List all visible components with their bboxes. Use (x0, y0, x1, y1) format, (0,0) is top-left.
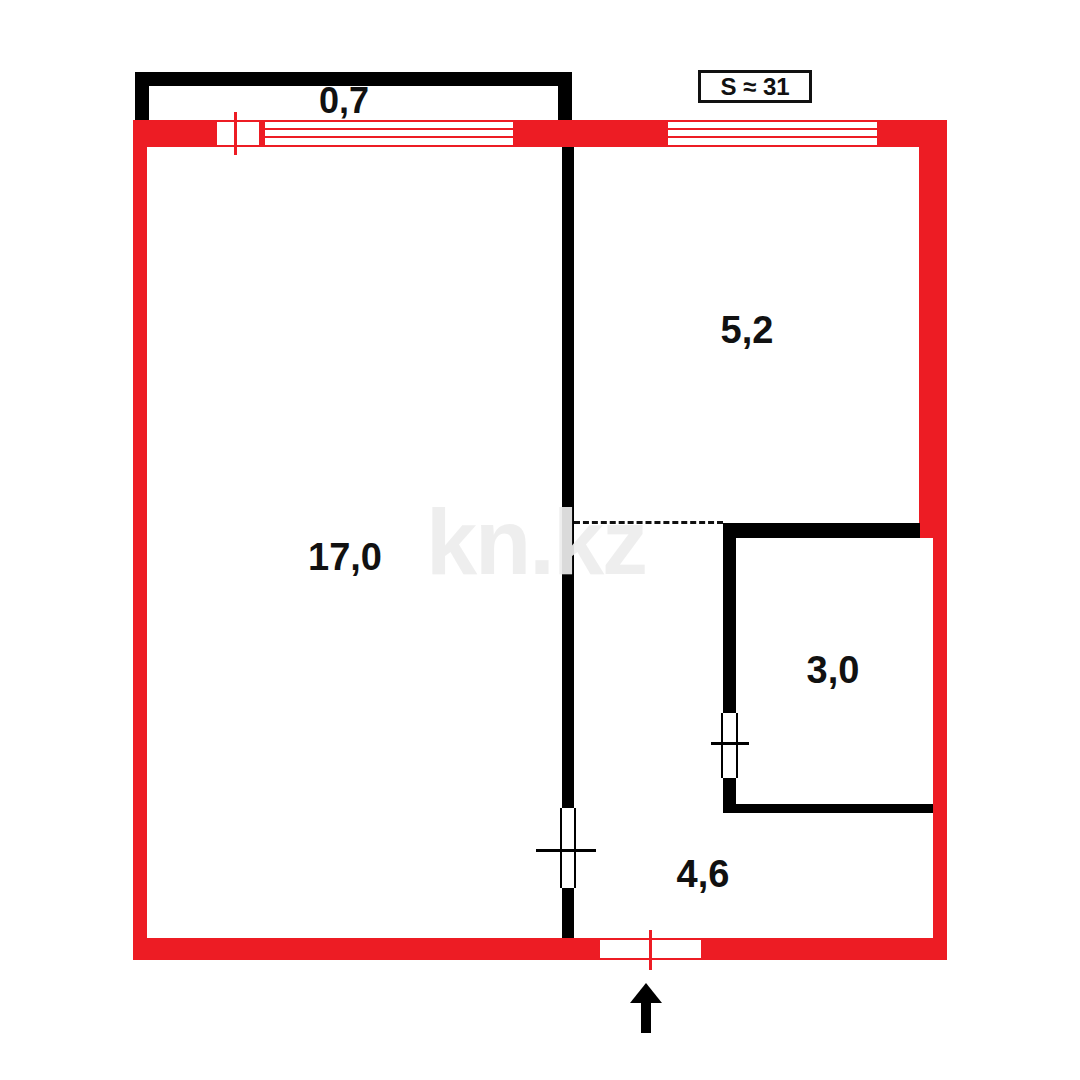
entrance-arrow-icon (630, 983, 662, 1003)
dashed-partition-line (574, 521, 723, 524)
total-area-box: S ≈ 31 (698, 70, 812, 103)
exterior-bottom-wall-left (133, 938, 598, 960)
bathroom-top-wall (723, 523, 920, 538)
living-room-door-tick (536, 849, 596, 852)
balcony-area-label: 0,7 (319, 80, 369, 122)
balcony-left-wall (135, 72, 149, 120)
interior-wall-vertical-upper (562, 147, 574, 808)
window-kitchen (668, 120, 877, 147)
balcony-door-tick (234, 112, 237, 155)
exterior-top-wall-middle (513, 120, 668, 147)
exterior-right-wall-upper (919, 120, 947, 538)
bathroom-left-wall-upper (723, 523, 736, 713)
exterior-left-wall (133, 120, 147, 960)
balcony-right-wall (558, 72, 572, 120)
exterior-right-wall-lower (933, 538, 947, 960)
bathroom-door-tick (711, 742, 749, 745)
hallway-area-label: 4,6 (677, 853, 730, 896)
window-glazing-line (265, 136, 513, 138)
entrance-arrow-stem (641, 1002, 651, 1033)
living-room-door (560, 808, 576, 888)
window-living-room (261, 120, 513, 147)
window-glazing-line (668, 136, 877, 138)
total-area-label: S ≈ 31 (720, 73, 789, 101)
bathroom-door (721, 713, 738, 778)
kitchen-area-label: 5,2 (721, 309, 774, 352)
window-glazing-line (668, 128, 877, 130)
window-glazing-line (265, 128, 513, 130)
exterior-bottom-wall-right (703, 938, 947, 960)
bathroom-bottom-wall (723, 804, 933, 813)
balcony-door (215, 120, 261, 147)
bathroom-area-label: 3,0 (807, 649, 860, 692)
floor-plan: 0,7 17,0 5,2 3,0 4,6 S ≈ 31 kn.kz (0, 0, 1080, 1080)
entrance-door-tick (649, 930, 652, 970)
interior-wall-vertical-lower (562, 888, 574, 938)
living-room-area-label: 17,0 (308, 536, 382, 579)
watermark-text: kn.kz (426, 490, 646, 595)
